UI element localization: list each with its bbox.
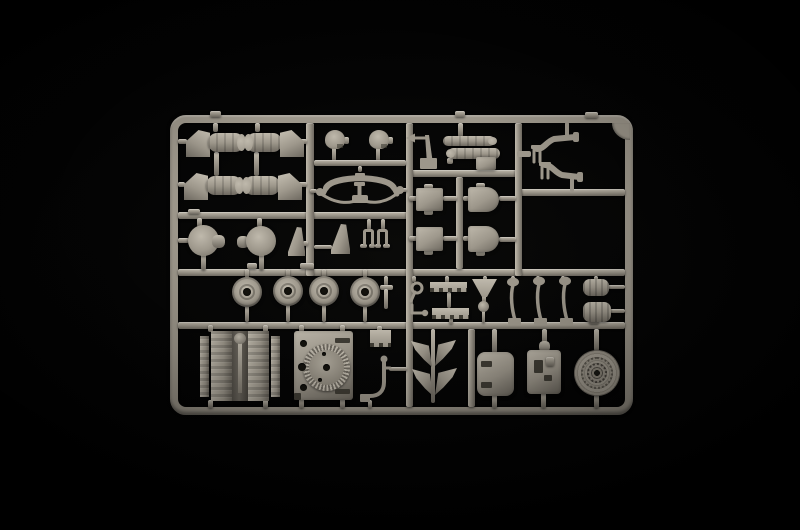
exhaust-cowl-pipe [206,176,242,195]
sprue-stem [178,139,187,144]
sprue-stem [443,196,457,201]
sprue-stem [499,196,516,201]
ribbed-cylinder [583,279,609,296]
square-hatch-panel [416,227,443,251]
ball-joint [478,301,489,312]
sprue-stem [541,393,546,408]
sprue-stem [255,123,260,132]
engine-side-panel [200,336,209,397]
engine-crank-rod [238,341,242,393]
round-hatch-panel [468,226,499,252]
gate-stub [300,263,314,269]
engine-side-panel [271,336,280,397]
sprue-stem [458,123,463,137]
dome-cap [369,130,389,149]
sprue-stem [363,306,367,322]
sprue-stem [314,245,332,249]
exhaust-pipes [517,122,617,192]
runner-rail [178,212,413,219]
engine-bank [248,331,269,401]
step-strip [430,282,467,292]
runner-rail [468,329,475,407]
sprue-stem [340,399,345,408]
exhaust-cowl-pipe [246,133,282,152]
drum-part [246,226,276,256]
exhaust-cowl-pipe [208,133,244,152]
dome-cap [325,130,345,149]
tow-hook [405,279,431,319]
sprue-stem [299,399,304,408]
sprue-stem [608,285,625,289]
housing-block [527,350,561,394]
gate-stub [455,111,465,117]
gate-stub [210,111,221,117]
hatch-box [477,352,514,396]
road-wheel [232,277,262,307]
sprue-stem [499,237,516,242]
engine-top-cap [234,333,246,344]
sprue-stem [443,236,457,241]
frame-bracket [377,229,388,246]
drum-knob [212,235,225,248]
sprue-stem [245,306,249,322]
bent-bracket [358,354,398,406]
engine-bank [211,331,232,401]
step-strip [432,308,469,319]
runner-rail [456,177,463,269]
road-wheel [273,276,303,306]
sprue-stem [594,329,599,351]
sprue-stem [492,329,497,353]
engine-block [199,330,280,402]
sprue-stem [254,152,259,176]
idler-wheel [574,350,620,396]
photo-stage [0,0,800,530]
gate-stub [188,209,200,214]
road-wheel [309,276,339,306]
sprue-stem [482,311,485,323]
sprue-stem [322,305,326,322]
frame-bracket [363,229,374,246]
capped-pin [384,289,388,309]
sprue-stem [259,254,264,270]
sprue-stem [201,254,206,270]
tank-cylinder [443,136,495,146]
tank-base [476,157,496,170]
sprue-stem [594,395,599,408]
sprue-stem [178,182,185,187]
fan-deck-plate [294,331,353,400]
round-hatch-panel [468,187,499,212]
vented-block [370,330,391,347]
sway-bar-and-tow-cable [312,166,408,212]
ribbed-cylinder [583,302,611,322]
antenna-mount [403,128,441,170]
runner-rail [406,170,522,177]
gate-stub [247,263,257,269]
sprue-stem [610,309,625,313]
sprue-stem [286,305,290,322]
sprue-stem [213,123,218,132]
road-wheel [350,277,380,307]
sprue-stem [492,395,497,408]
exhaust-cowl-pipe [244,176,280,195]
sprue-stem [447,292,451,308]
sprue-stem [214,152,219,176]
gate-stub [585,112,598,118]
square-hatch-panel [416,188,443,211]
lever-arms [504,276,582,326]
